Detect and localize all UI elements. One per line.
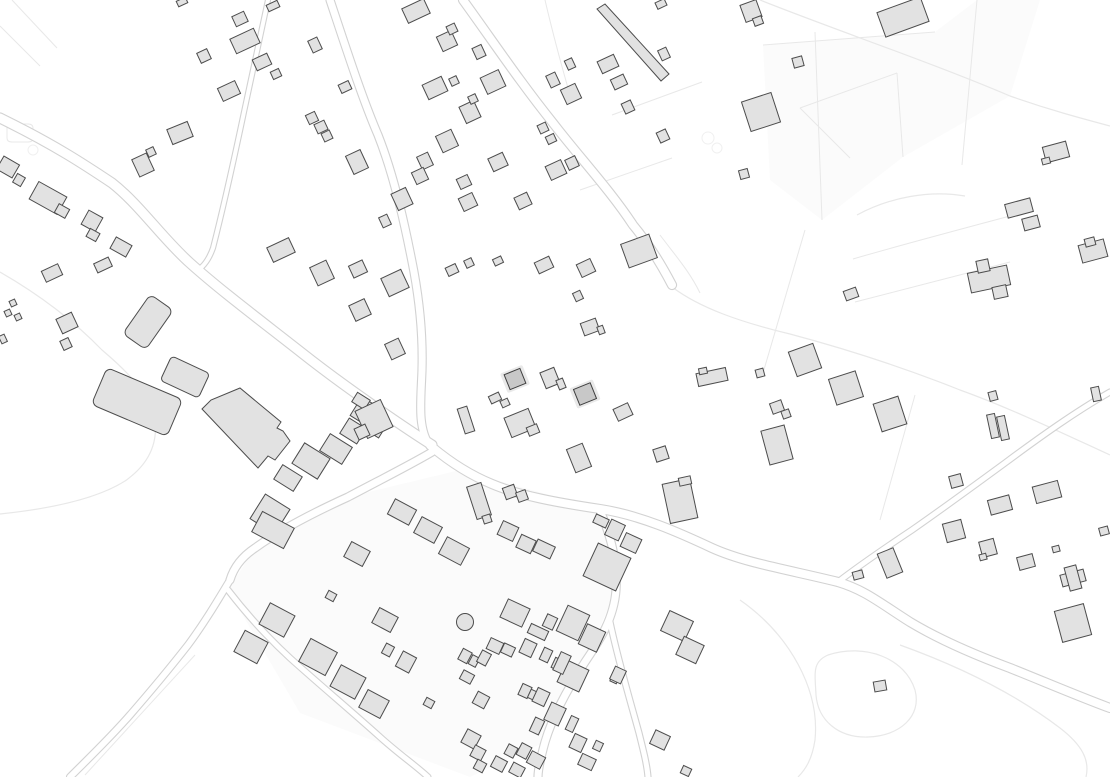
building-footprint bbox=[976, 259, 990, 273]
building-footprint bbox=[755, 368, 765, 378]
building-footprint bbox=[792, 56, 804, 68]
building-footprint bbox=[979, 553, 987, 561]
round-building-footprint bbox=[457, 614, 474, 631]
building-footprint bbox=[1041, 157, 1050, 165]
building-footprint bbox=[988, 391, 998, 402]
building-footprint bbox=[482, 514, 492, 524]
building-footprint bbox=[1099, 526, 1110, 536]
building-footprint bbox=[949, 474, 964, 489]
building-footprint bbox=[698, 367, 707, 375]
map-viewport[interactable] bbox=[0, 0, 1110, 777]
building-footprint bbox=[1052, 545, 1060, 553]
building-footprint bbox=[942, 519, 965, 542]
building-footprint bbox=[873, 680, 887, 692]
map-canvas bbox=[0, 0, 1110, 777]
building-footprint bbox=[738, 168, 749, 179]
building-footprint bbox=[992, 285, 1008, 300]
